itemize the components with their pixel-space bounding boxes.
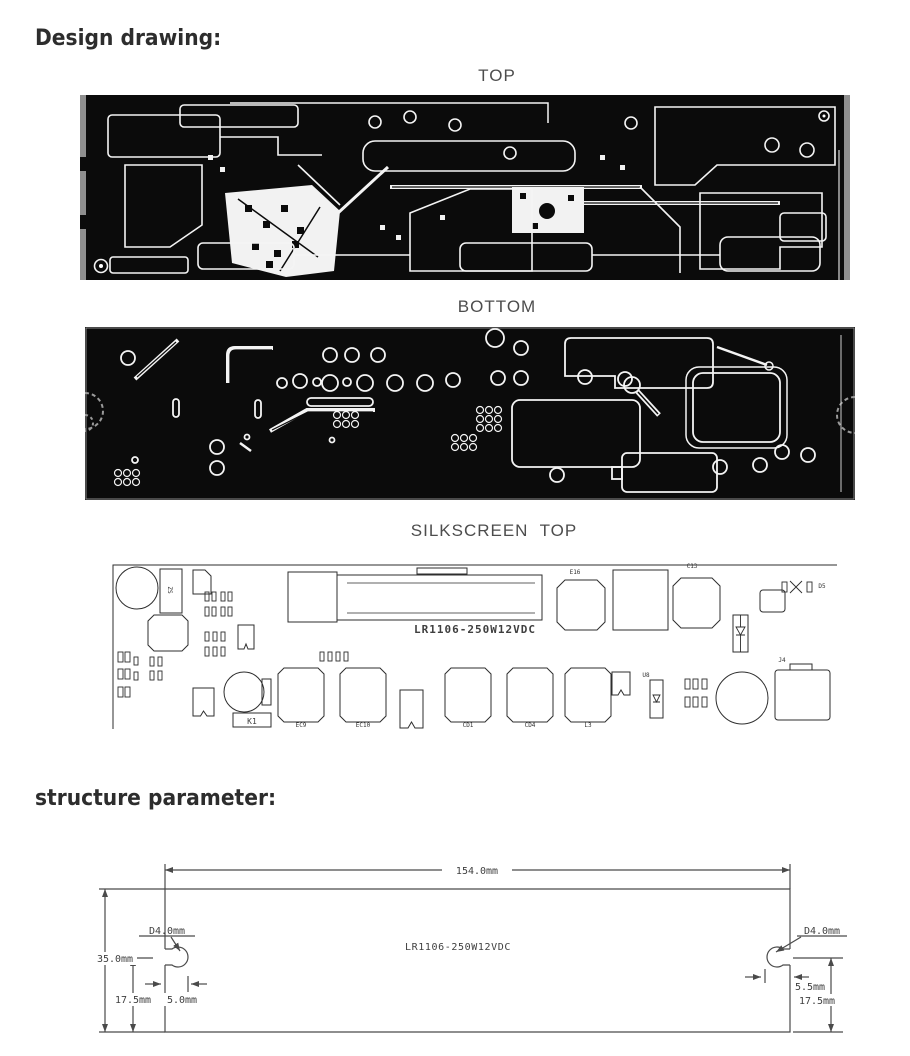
silk-label-ec9: EC9	[296, 722, 307, 729]
silk-label-u8: U8	[642, 672, 650, 679]
silk-label-zs: ZS	[166, 586, 173, 594]
dim-hole-offset-left-label: 17.5mm	[115, 995, 151, 1006]
silk-label-l3: L3	[584, 722, 592, 729]
design-drawing-heading: Design drawing:	[35, 26, 221, 51]
structure-parameter-heading: structure parameter:	[35, 786, 276, 811]
pcb-bottom-image	[85, 327, 855, 500]
silk-label-j4: J4	[778, 657, 786, 664]
page: Design drawing: TOP	[0, 0, 910, 1056]
silkscreen-view-label: SILKSCREEN TOP	[411, 521, 577, 541]
silk-label-e16: E16	[570, 569, 581, 576]
silkscreen-image: ZS E16 C13 D5 U8 K1 EC9 EC10 CD1 CD4 L3 …	[110, 557, 838, 729]
silk-label-d5: D5	[818, 583, 826, 590]
dim-height-label: 35.0mm	[97, 954, 133, 965]
dim-hole-offset-right-label: 17.5mm	[799, 996, 835, 1007]
bottom-view-label: BOTTOM	[458, 297, 536, 317]
silk-label-c13: C13	[687, 563, 698, 570]
structure-drawing: 154.0mm 35.0mm 17.5mm 5.0mm D4.0mm D4.0m…	[95, 848, 865, 1050]
dim-hole-dia-right-label: D4.0mm	[804, 926, 840, 937]
silk-label-cd1: CD1	[463, 722, 474, 729]
silk-label-cd4: CD4	[525, 722, 536, 729]
structure-model-text: LR1106-250W12VDC	[405, 942, 511, 953]
silk-label-k1: K1	[247, 717, 257, 726]
silk-label-ec10: EC10	[356, 722, 371, 729]
top-view-label: TOP	[478, 66, 516, 86]
silkscreen-model-text: LR1106-250W12VDC	[414, 623, 536, 636]
pcb-top-image	[80, 95, 850, 280]
dim-slot-depth-left-label: 5.0mm	[167, 995, 197, 1006]
dim-hole-dia-left-label: D4.0mm	[149, 926, 185, 937]
dim-slot-depth-right-label: 5.5mm	[795, 982, 825, 993]
dim-length-label: 154.0mm	[456, 866, 498, 877]
